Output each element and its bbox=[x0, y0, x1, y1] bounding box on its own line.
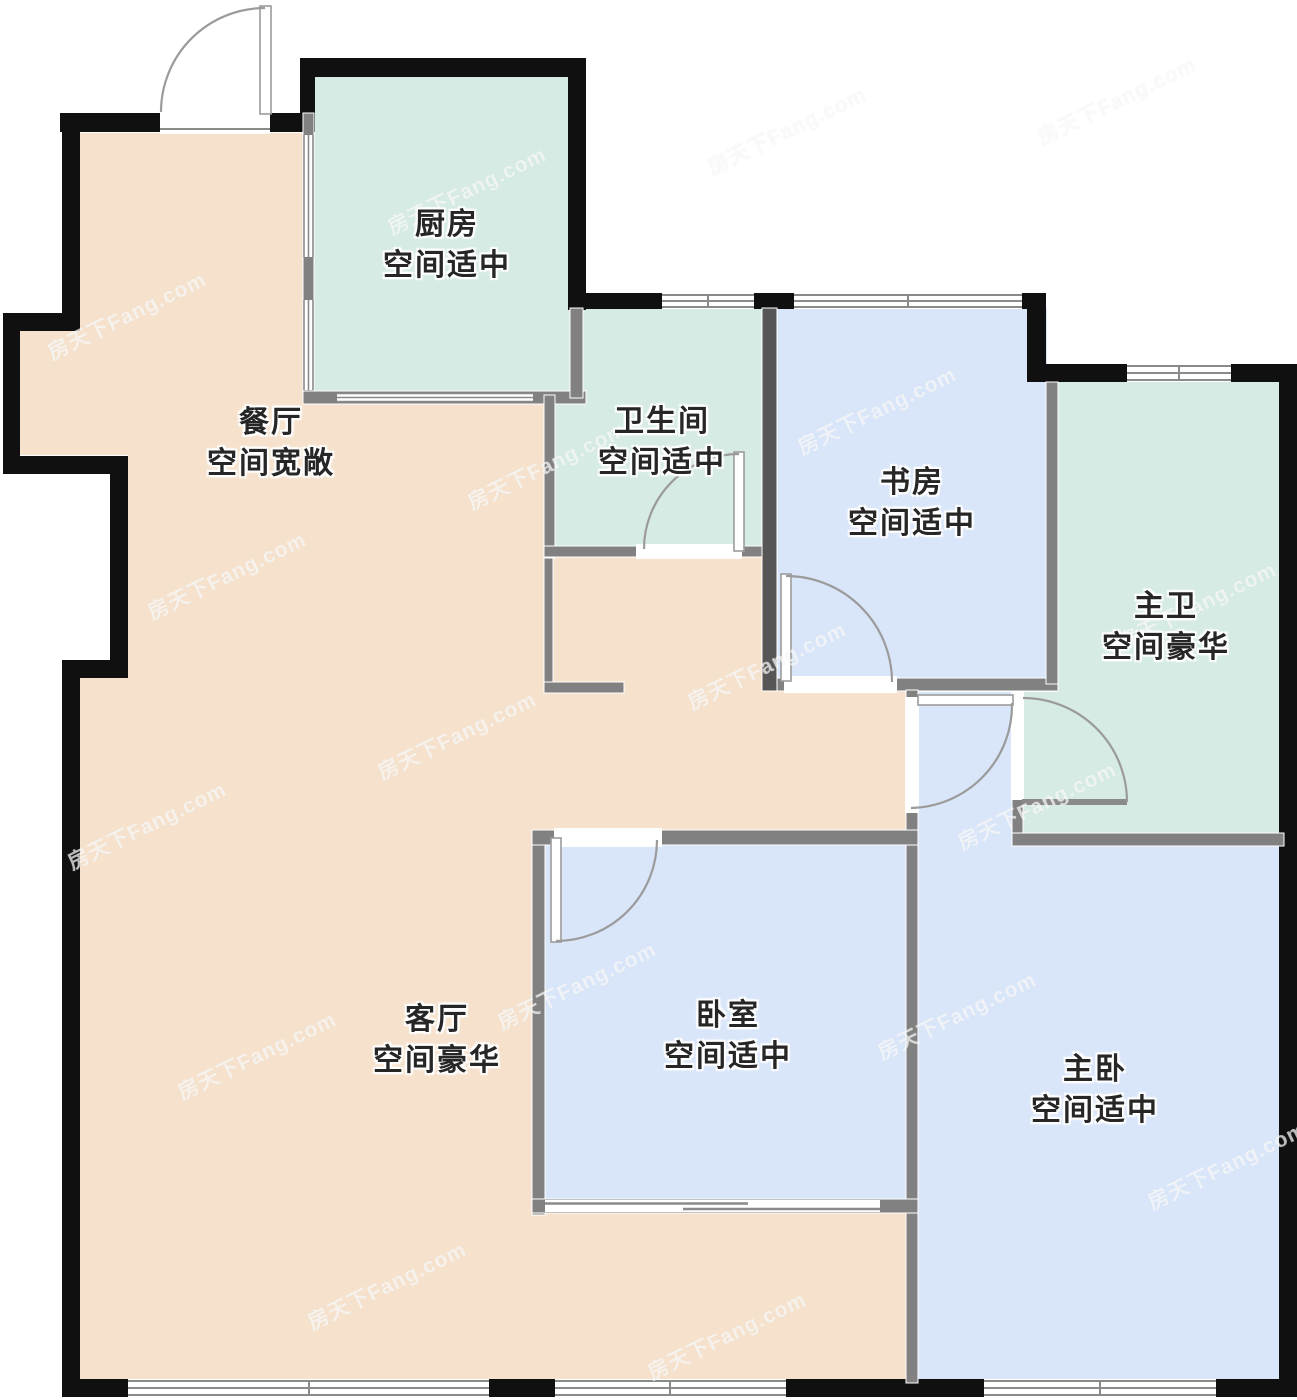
wall-hall bbox=[544, 558, 553, 692]
wall-bedroom-left bbox=[532, 830, 545, 1215]
bedroom-door-leaf bbox=[551, 838, 561, 942]
study-door-leaf bbox=[781, 574, 791, 681]
wall-kitchen-top bbox=[308, 58, 586, 77]
wall-right bbox=[1279, 364, 1297, 1397]
wall-left-jut-bottom bbox=[3, 456, 128, 474]
entry-door-leaf bbox=[260, 6, 271, 114]
wall-top-a bbox=[586, 293, 662, 309]
wall-kitchen-right bbox=[568, 58, 586, 310]
bathroom-door-opening bbox=[636, 544, 742, 559]
floor-plan-drawing bbox=[0, 0, 1297, 1400]
wall-step-vertical bbox=[1027, 293, 1046, 382]
wall-top-b bbox=[754, 293, 794, 309]
wall-left-1 bbox=[62, 113, 80, 314]
wall-mbath-left-upper bbox=[1046, 382, 1058, 684]
floor-bedroom bbox=[543, 843, 910, 1203]
study-door-opening bbox=[784, 676, 897, 693]
wall-hall-stub bbox=[544, 682, 624, 693]
entry-door-arc bbox=[161, 8, 265, 112]
floor-bathroom bbox=[552, 308, 765, 552]
floor-plan: 房天下Fang.com 房天下Fang.com 房天下Fang.com 房天下F… bbox=[0, 0, 1297, 1400]
bathroom-door-leaf bbox=[734, 452, 744, 551]
wall-left-2 bbox=[110, 456, 128, 661]
wall-bottom-d bbox=[1216, 1379, 1297, 1397]
master-bath-door-leaf bbox=[1022, 799, 1127, 805]
wall-bottom-b bbox=[489, 1379, 555, 1397]
wall-mbath-bottom bbox=[1012, 833, 1284, 846]
floor-study bbox=[775, 308, 1047, 682]
entry-door-opening bbox=[160, 113, 270, 134]
wall-mbath-top-a bbox=[1045, 364, 1127, 382]
floor-kitchen bbox=[313, 70, 571, 395]
floor-master-bathroom bbox=[1020, 380, 1284, 838]
wall-left-3 bbox=[62, 660, 80, 1397]
bedroom-door-opening bbox=[554, 828, 662, 847]
wall-bath-left bbox=[544, 395, 555, 558]
wall-left-jut-side bbox=[3, 313, 20, 474]
corridor-door-opening bbox=[905, 697, 919, 813]
wall-study-left bbox=[762, 308, 777, 691]
wall-bottom-c bbox=[786, 1379, 984, 1397]
corridor-door-leaf bbox=[918, 695, 1013, 705]
wall-bath-left-upper bbox=[570, 308, 583, 398]
